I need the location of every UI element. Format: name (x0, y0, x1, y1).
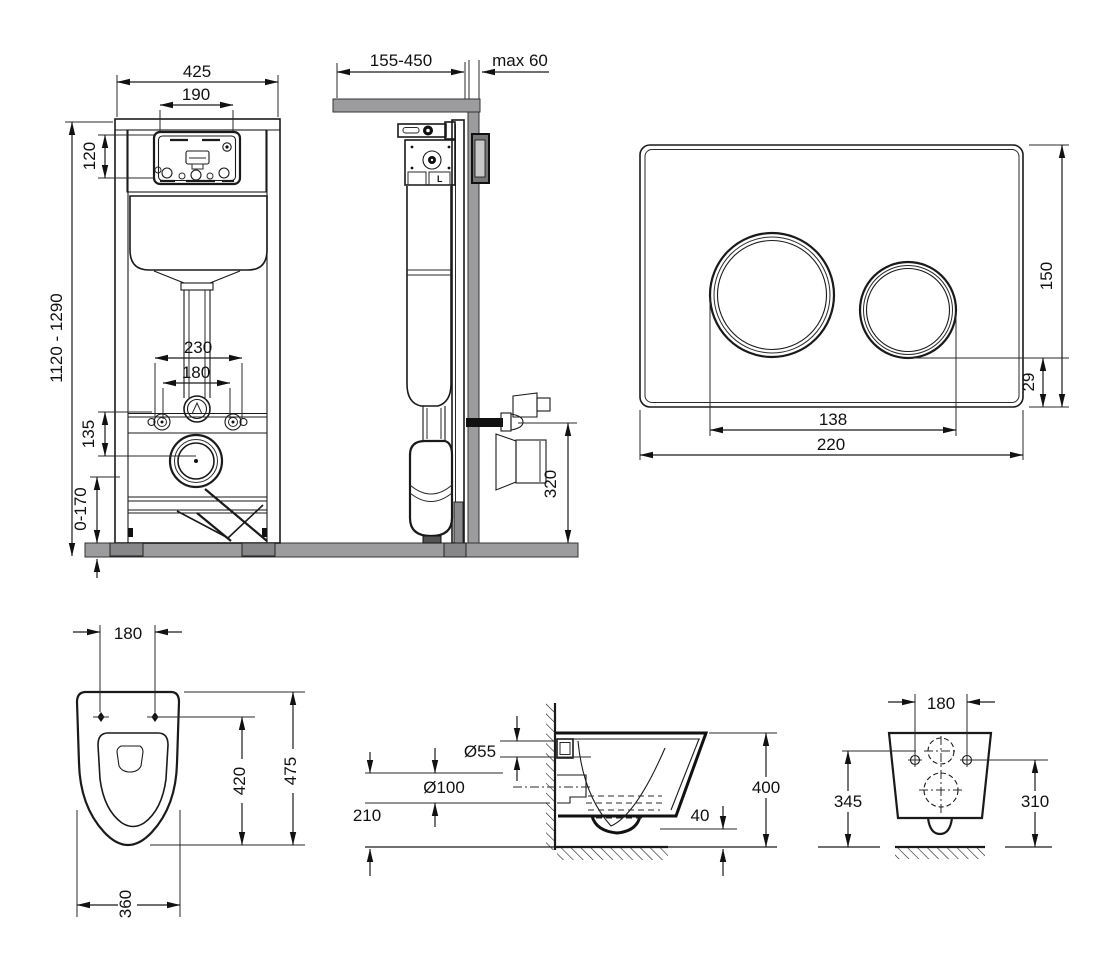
dim-bolt-span-front: 180 (927, 694, 955, 713)
flush-button-small (860, 262, 956, 358)
dim-frame-width: 425 (183, 62, 211, 81)
flush-sleeve (472, 134, 489, 183)
dim-cutout-width: 190 (182, 85, 210, 104)
dim-height-right: 310 (1021, 792, 1049, 811)
bowl-outline-front (889, 733, 991, 818)
wall-hatch (546, 703, 555, 850)
frame-front-view: 425 190 120 1120 - 1290 230 180 135 (47, 62, 280, 578)
bowl-top-dimensions: 180 420 475 360 (73, 624, 305, 926)
frame-side-dimensions: 155-450 max 60 320 (337, 51, 577, 543)
bowl-outline-top (77, 692, 179, 845)
cistern-tank (130, 196, 267, 270)
dim-fixing-outer: 230 (184, 338, 212, 357)
bowl-front-view: 180 345 310 (818, 694, 1055, 859)
dim-drain-height: 320 (541, 470, 560, 498)
flush-plate-dimensions: 150 29 138 220 (640, 145, 1069, 460)
dim-depth-range: 155-450 (370, 51, 432, 70)
shelf (333, 99, 480, 112)
valve-label: L (437, 174, 443, 184)
wall-bracket (398, 122, 455, 139)
dim-fixing-inner: 180 (182, 363, 210, 382)
dim-bolt-span-top: 180 (114, 624, 142, 643)
ground-hatch (895, 848, 985, 859)
dim-plate-height: 150 (1037, 262, 1056, 290)
dim-bowl-depth: 475 (281, 757, 300, 785)
inner-bowl-curve (578, 741, 665, 826)
inlet-connector (557, 739, 573, 758)
frame-side-view: L 155-450 (333, 51, 577, 557)
diagram-canvas: 425 190 120 1120 - 1290 230 180 135 (0, 0, 1120, 972)
dim-wall-thickness: max 60 (492, 51, 548, 70)
frame-foot-side (444, 543, 466, 557)
dim-bowl-width: 360 (116, 890, 135, 918)
dim-height-left: 345 (834, 792, 862, 811)
dim-seat-depth: 420 (230, 767, 249, 795)
floor-hatch (557, 848, 668, 860)
outlet-socket (557, 775, 586, 803)
dim-adjust-range: 0-170 (71, 487, 90, 530)
frame-foot-right (242, 543, 275, 556)
trap-bump (928, 818, 952, 834)
frame-rail-side (452, 120, 464, 543)
dim-cutout-height: 120 (80, 142, 99, 170)
flush-plate-view: 150 29 138 220 (640, 145, 1069, 460)
dim-outlet-height: 210 (353, 806, 381, 825)
dim-install-height: 1120 - 1290 (47, 293, 66, 382)
dim-plate-width: 220 (817, 435, 845, 454)
bolt-marker-right (147, 712, 163, 722)
dim-outlet-dia: Ø100 (423, 778, 465, 797)
bowl-top-view: 180 420 475 360 (73, 624, 305, 926)
dim-button-span: 138 (819, 410, 847, 429)
dim-button-bottom-gap: 29 (1019, 373, 1038, 392)
cistern-side: L (405, 140, 455, 543)
dim-drain-offset: 135 (79, 420, 98, 448)
frame-foot-left (110, 543, 143, 556)
fixing-bolt-left (148, 414, 170, 430)
trap-bulge (592, 816, 640, 833)
floor (85, 543, 578, 557)
outlet-connector (496, 434, 516, 490)
drain-elbow (170, 435, 267, 541)
bolt-marker-left (93, 712, 109, 722)
flush-spot (117, 746, 143, 772)
bolt-hole-right (960, 753, 974, 767)
bolt-hole-left (908, 753, 922, 767)
dim-bowl-height: 400 (752, 778, 780, 797)
seat-opening (98, 733, 168, 827)
fixing-bolt-right (225, 414, 247, 430)
dim-inlet-dia: Ø55 (464, 742, 496, 761)
installation-diagram: 425 190 120 1120 - 1290 230 180 135 (0, 0, 1120, 972)
dim-water-depth: 40 (691, 806, 710, 825)
bowl-side-view: Ø55 Ø100 210 40 400 (353, 703, 786, 876)
protection-panel (127, 130, 266, 192)
flush-button-large (710, 233, 834, 357)
